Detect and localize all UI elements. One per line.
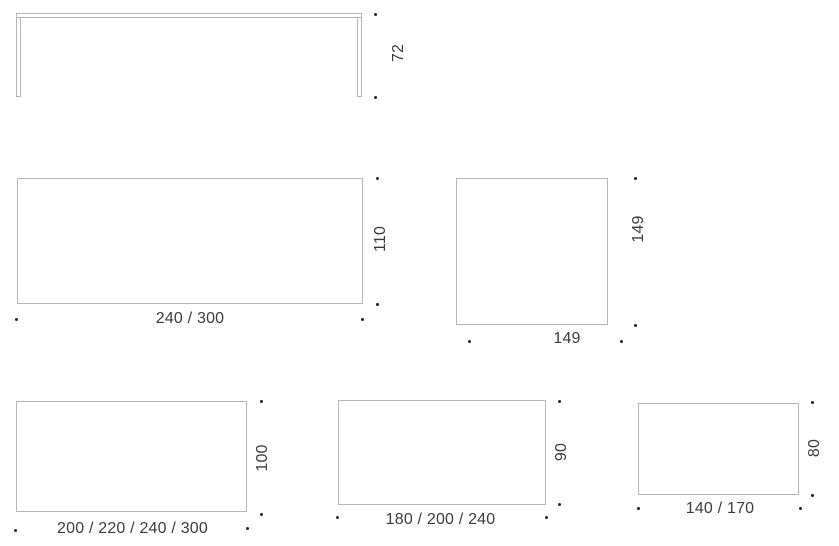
dim-dot	[336, 516, 339, 519]
dim-dot	[637, 507, 640, 510]
dim-dot	[799, 507, 802, 510]
dim-dot	[545, 516, 548, 519]
dim-dot	[376, 177, 379, 180]
dim-dot	[14, 529, 17, 532]
dim-dot	[260, 513, 263, 516]
top-view-80-outline	[638, 403, 799, 495]
table-top-profile	[16, 13, 362, 18]
top-view-90-width-label: 180 / 200 / 240	[386, 512, 496, 528]
top-view-square-height-label: 149	[631, 215, 647, 242]
dim-dot	[374, 96, 377, 99]
dim-dot	[634, 177, 637, 180]
dim-dot	[468, 340, 471, 343]
top-view-100-height-label: 100	[255, 444, 271, 471]
dim-dot	[374, 13, 377, 16]
top-view-100-width-label: 200 / 220 / 240 / 300	[57, 521, 208, 537]
table-leg-left	[16, 17, 21, 97]
dim-dot	[361, 318, 364, 321]
dim-dot	[558, 503, 561, 506]
dim-dot	[634, 324, 637, 327]
top-view-80-height-label: 80	[807, 438, 823, 456]
top-view-100-outline	[16, 401, 247, 512]
dim-dot	[376, 303, 379, 306]
top-view-square-width-label: 149	[553, 331, 580, 347]
dimension-sheet: 72 110 240 / 300 149 149 100 200 / 220 /…	[0, 0, 839, 546]
top-view-80-width-label: 140 / 170	[686, 501, 755, 517]
top-view-large-outline	[17, 178, 363, 304]
top-view-large-height-label: 110	[373, 226, 389, 252]
dim-dot	[15, 318, 18, 321]
top-view-square-outline	[456, 178, 608, 325]
dim-dot	[620, 340, 623, 343]
dim-dot	[811, 401, 814, 404]
dim-dot	[558, 400, 561, 403]
top-view-large-width-label: 240 / 300	[156, 311, 225, 327]
top-view-90-height-label: 90	[554, 442, 570, 460]
table-leg-right	[357, 17, 362, 97]
dim-dot	[246, 527, 249, 530]
dim-dot	[811, 494, 814, 497]
top-view-90-outline	[338, 400, 546, 505]
dim-dot	[260, 400, 263, 403]
side-elevation-height-label: 72	[391, 43, 407, 61]
